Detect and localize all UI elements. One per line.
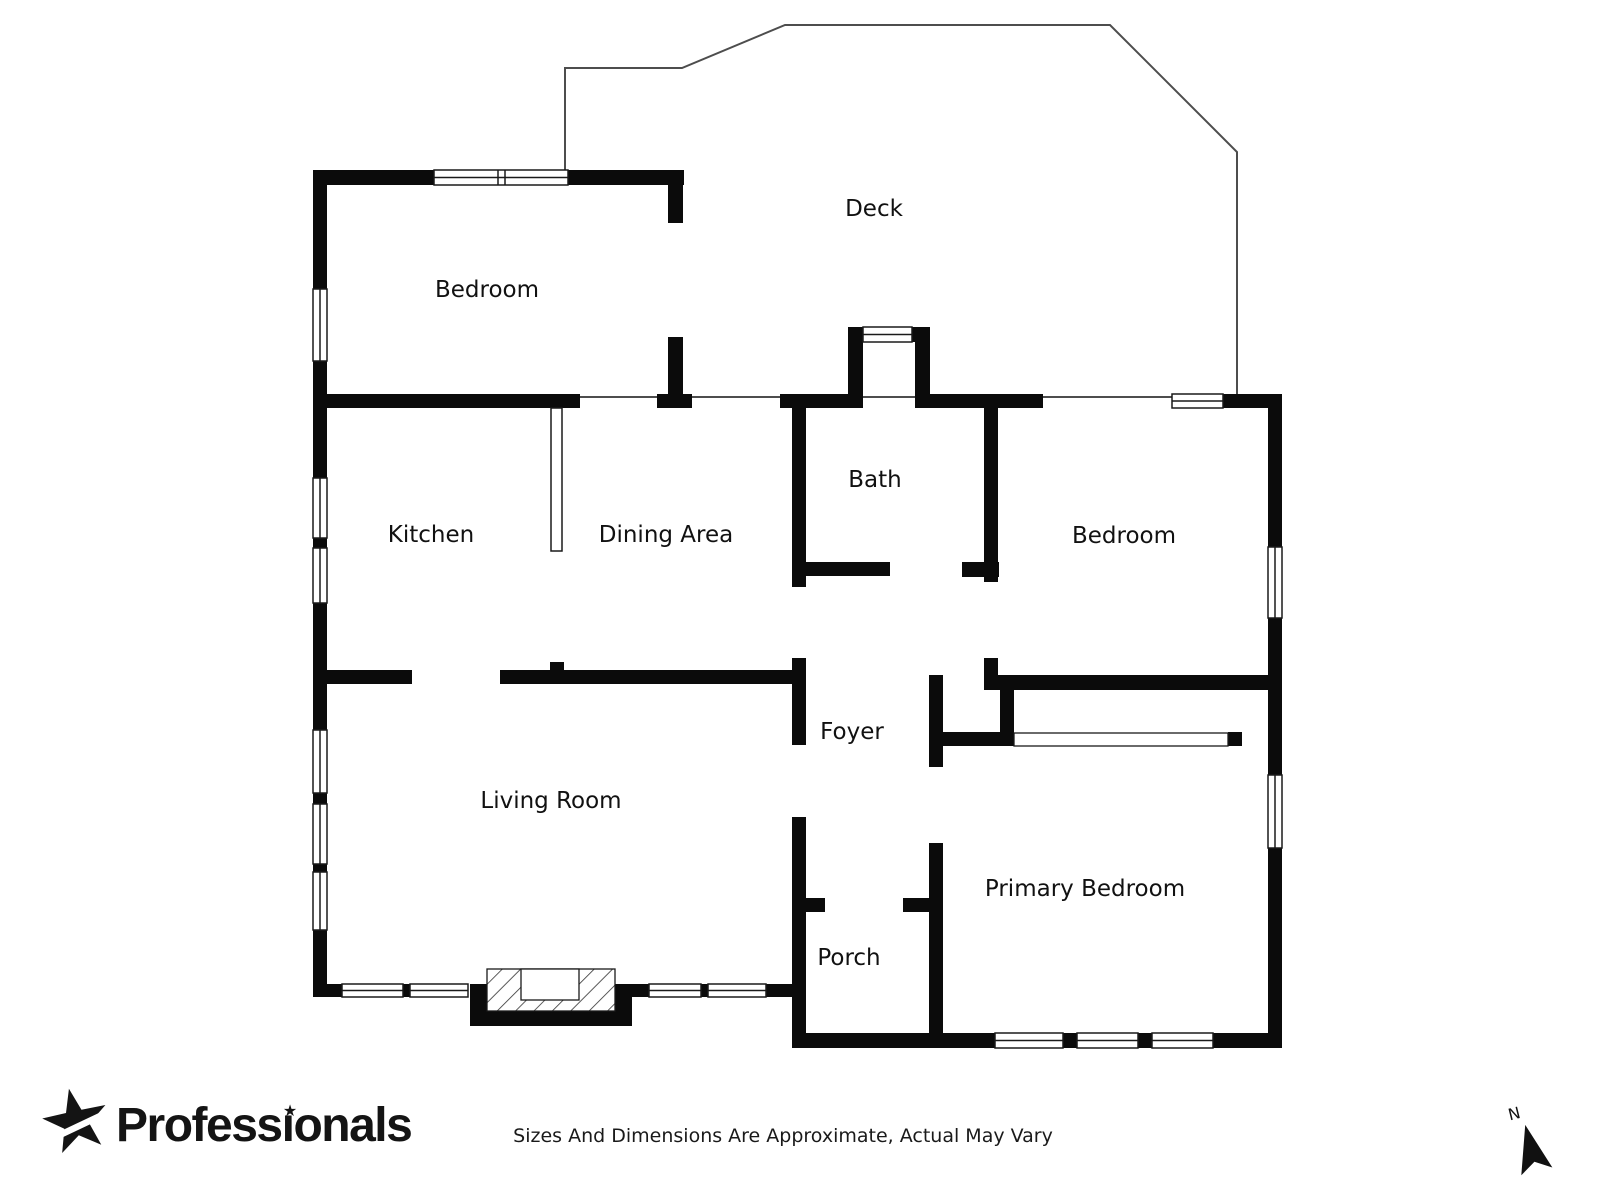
window xyxy=(708,984,766,997)
window xyxy=(410,984,468,997)
wall-segment xyxy=(988,675,1282,690)
wall-segment xyxy=(792,1033,943,1048)
window xyxy=(313,478,327,538)
room-label-living-room: Living Room xyxy=(480,788,621,814)
window xyxy=(863,327,912,342)
wall-segment xyxy=(929,675,943,767)
window xyxy=(313,289,327,361)
room-label-deck: Deck xyxy=(845,196,904,222)
wall-segment xyxy=(500,670,806,684)
wall-segment xyxy=(657,394,692,408)
wall-segment xyxy=(668,170,683,223)
wall-segment xyxy=(792,408,806,587)
window xyxy=(1268,775,1282,848)
window xyxy=(649,984,701,997)
floorplan-drawing: Deck Bedroom Kitchen Dining Area Bath Be… xyxy=(0,0,1600,1200)
room-label-bedroom-top-left: Bedroom xyxy=(435,277,539,303)
room-label-porch: Porch xyxy=(817,945,880,971)
logo-star-dot: ★ xyxy=(283,1101,297,1120)
wall-segment xyxy=(313,984,342,997)
room-label-foyer: Foyer xyxy=(820,719,884,745)
window xyxy=(313,730,327,793)
north-label: N xyxy=(1506,1103,1522,1124)
north-arrow-pointer xyxy=(1510,1121,1553,1175)
wall-segment xyxy=(929,732,1014,746)
wall-segment xyxy=(313,670,412,684)
window xyxy=(342,984,403,997)
room-label-kitchen: Kitchen xyxy=(388,522,474,548)
wall-segment xyxy=(792,562,890,576)
closet-sliding-door xyxy=(1014,733,1228,746)
logo-wordmark: Professıonals xyxy=(116,1099,411,1152)
brand-logo: Professıonals ★ xyxy=(32,1081,412,1157)
room-label-primary-bedroom: Primary Bedroom xyxy=(985,876,1185,902)
room-labels: Deck Bedroom Kitchen Dining Area Bath Be… xyxy=(388,196,1185,971)
floorplan-page: Deck Bedroom Kitchen Dining Area Bath Be… xyxy=(0,0,1600,1200)
window xyxy=(1077,1033,1138,1048)
fireplace-firebox xyxy=(521,969,579,1000)
wall-segment xyxy=(915,327,930,408)
room-label-bedroom-right: Bedroom xyxy=(1072,523,1176,549)
window xyxy=(434,170,568,185)
wall-segment xyxy=(550,662,564,670)
kitchen-counter-divider xyxy=(551,408,562,551)
window xyxy=(1152,1033,1213,1048)
wall-segment xyxy=(701,984,708,997)
wall-segment xyxy=(1268,394,1282,690)
wall-segment xyxy=(984,394,998,582)
wall-segment xyxy=(792,898,825,912)
wall-segment xyxy=(403,984,410,997)
room-label-dining-area: Dining Area xyxy=(599,522,734,548)
window xyxy=(313,804,327,864)
fireplace xyxy=(487,969,615,1011)
window xyxy=(1172,394,1223,408)
wall-segment xyxy=(780,394,848,408)
window xyxy=(313,548,327,603)
window xyxy=(313,872,327,930)
north-arrow: N xyxy=(1504,1099,1552,1176)
wall-segment xyxy=(1268,690,1282,1048)
window xyxy=(995,1033,1063,1048)
wall-segment xyxy=(903,898,943,912)
wall-segment xyxy=(929,843,943,1048)
star-icon xyxy=(32,1081,119,1157)
room-label-bath: Bath xyxy=(848,467,901,493)
window xyxy=(1268,547,1282,618)
wall-segment xyxy=(766,984,806,997)
disclaimer-text: Sizes And Dimensions Are Approximate, Ac… xyxy=(513,1125,1053,1147)
wall-segment xyxy=(792,817,806,1048)
wall-segment xyxy=(1228,732,1242,746)
wall-segment xyxy=(313,394,580,408)
